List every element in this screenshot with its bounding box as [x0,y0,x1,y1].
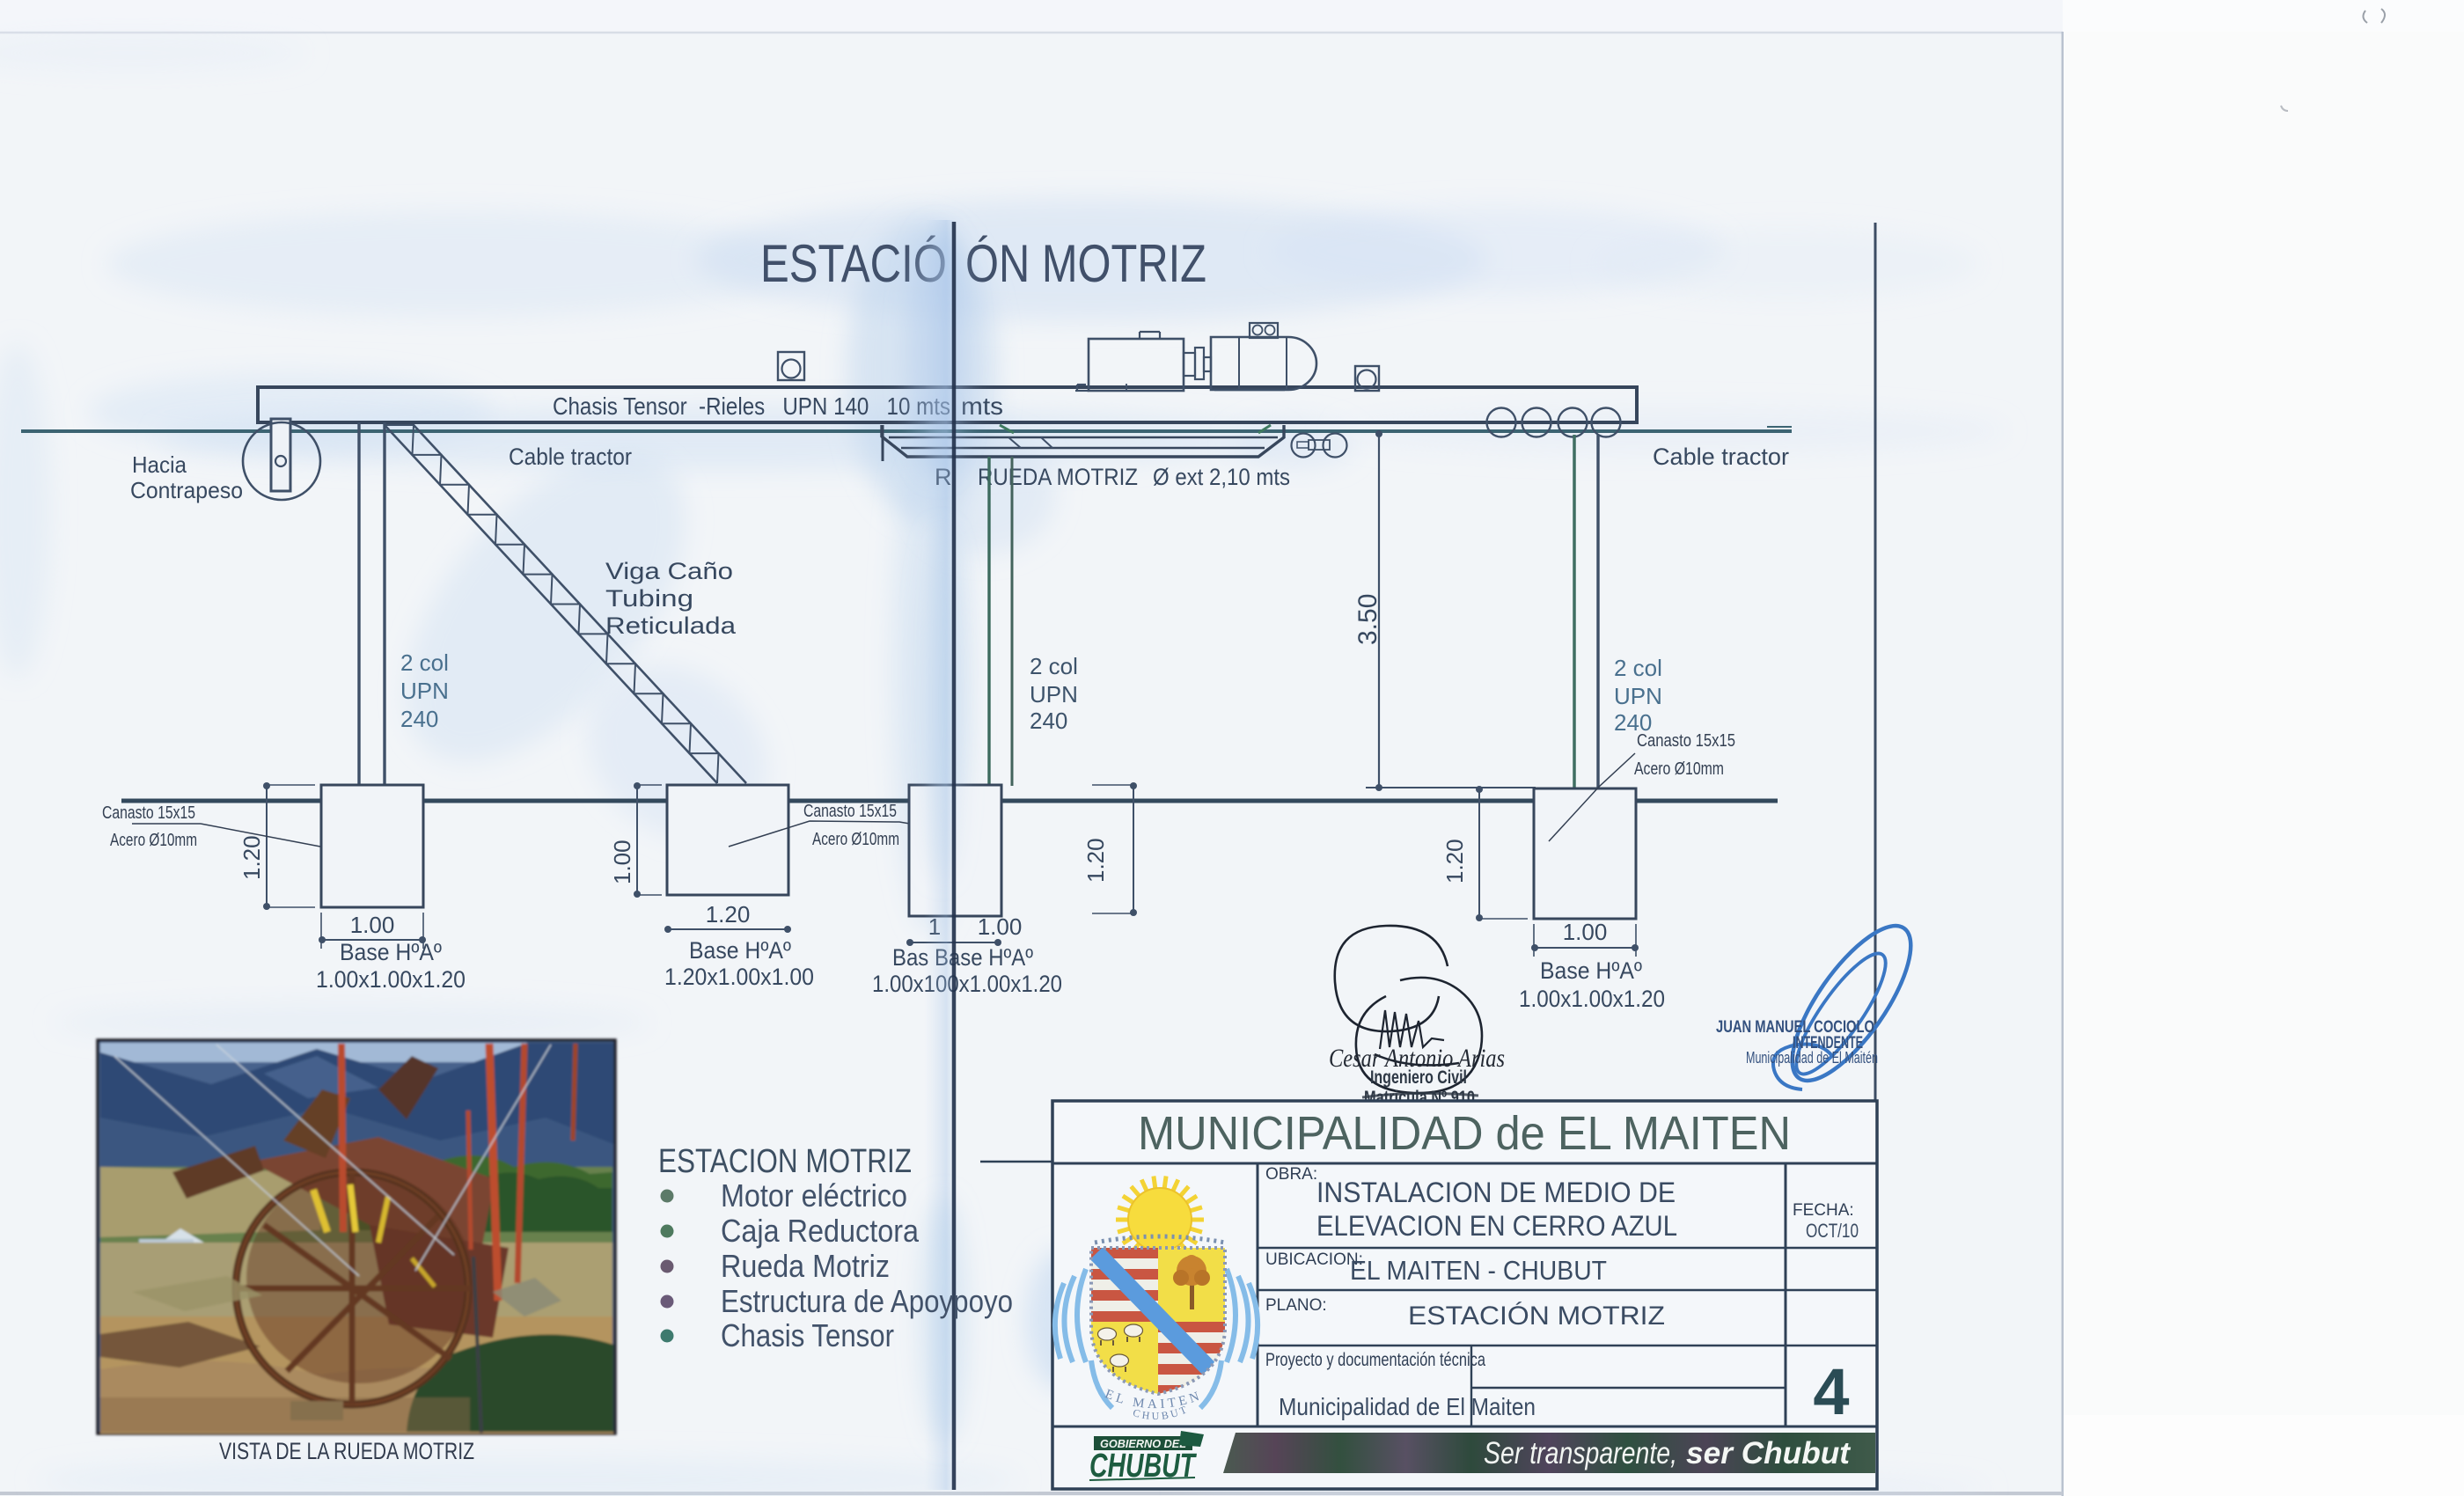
svg-text:1.00x100x1.00x1.20: 1.00x100x1.00x1.20 [872,971,1062,997]
svg-text:1.20: 1.20 [238,835,265,880]
svg-text:EL MAITEN - CHUBUT: EL MAITEN - CHUBUT [1350,1255,1607,1286]
svg-text:UPN: UPN [1614,683,1662,709]
svg-text:MUNICIPALIDAD de EL MAITEN: MUNICIPALIDAD de EL MAITEN [1138,1107,1791,1160]
svg-text:Ser transparente,: Ser transparente, [1484,1436,1677,1470]
svg-text:UPN: UPN [400,678,449,704]
svg-text:2 col: 2 col [1614,655,1662,681]
svg-text:Ingeniero Civil: Ingeniero Civil [1370,1067,1467,1088]
svg-text:FECHA:: FECHA: [1793,1201,1854,1220]
svg-text:Proyecto y documentación técni: Proyecto y documentación técnica [1265,1350,1485,1370]
svg-text:OBRA:: OBRA: [1265,1165,1317,1184]
svg-text:INSTALACION DE MEDIO DE: INSTALACION DE MEDIO DE [1316,1177,1676,1208]
svg-text:1.00: 1.00 [350,912,395,938]
svg-text:Base HºAº: Base HºAº [340,939,442,965]
svg-text:2 col: 2 col [400,649,449,676]
svg-text:RUEDA MOTRIZ: RUEDA MOTRIZ [978,464,1138,490]
svg-text:Contrapeso: Contrapeso [130,477,243,503]
svg-text:UBICACION:: UBICACION: [1265,1250,1363,1269]
svg-text:Reticulada: Reticulada [605,612,737,639]
svg-text:240: 240 [1030,708,1067,734]
svg-text:Tubing: Tubing [605,585,693,612]
svg-text:Canasto 15x15: Canasto 15x15 [803,802,897,821]
svg-text:1.20: 1.20 [706,901,751,928]
svg-text:Viga Caño: Viga Caño [605,558,733,584]
svg-text:3.50: 3.50 [1353,594,1382,645]
svg-text:ELEVACION EN CERRO AZUL: ELEVACION EN CERRO AZUL [1316,1210,1677,1242]
svg-text:Chasis Tensor -Rieles UPN 1: Chasis Tensor -Rieles UPN 140 10 mts [553,392,950,420]
svg-text:VISTA DE LA RUEDA MOTRIZ: VISTA DE LA RUEDA MOTRIZ [219,1438,474,1464]
svg-text:Ø ext 2,10 mts: Ø ext 2,10 mts [1153,464,1290,490]
svg-text:Motor eléctrico: Motor eléctrico [721,1177,907,1214]
svg-text:1.00x1.00x1.20: 1.00x1.00x1.20 [1519,986,1665,1012]
svg-text:Acero Ø10mm: Acero Ø10mm [110,831,197,850]
svg-text:Acero Ø10mm: Acero Ø10mm [1634,759,1724,779]
svg-text:1.20: 1.20 [1082,838,1109,883]
svg-text:Base HºAº: Base HºAº [689,937,791,964]
svg-text:1.00: 1.00 [1563,919,1608,945]
svg-text:Caja Reductora: Caja Reductora [721,1213,920,1249]
svg-text:ESTACIÓN MOTRIZ: ESTACIÓN MOTRIZ [1408,1302,1665,1331]
svg-text:Cable tractor: Cable tractor [509,444,632,470]
svg-text:Municipalidad de El Maitén: Municipalidad de El Maitén [1746,1049,1878,1067]
svg-text:1.00: 1.00 [978,913,1023,940]
svg-text:1.00x1.00x1.20: 1.00x1.00x1.20 [316,966,466,993]
svg-text:240: 240 [400,706,438,732]
svg-text:PLANO:: PLANO: [1265,1296,1327,1315]
svg-text:Municipalidad de El Maiten: Municipalidad de El Maiten [1279,1393,1536,1420]
svg-text:OCT/10: OCT/10 [1806,1220,1859,1242]
svg-text:1.20x1.00x1.00: 1.20x1.00x1.00 [664,964,814,990]
svg-text:Canasto 15x15: Canasto 15x15 [1637,731,1735,751]
svg-text:Base HºAº: Base HºAº [1540,957,1642,984]
svg-text:1.00: 1.00 [609,840,635,884]
svg-text:2 col: 2 col [1030,653,1078,679]
svg-text:Acero Ø10mm: Acero Ø10mm [812,830,899,849]
svg-text:mts: mts [961,392,1003,420]
svg-text:1.20: 1.20 [1441,839,1468,884]
svg-text:ser Chubut: ser Chubut [1686,1436,1851,1470]
svg-text:UPN: UPN [1030,681,1078,708]
svg-text:Chasis Tensor: Chasis Tensor [721,1317,894,1353]
svg-text:Bas Base HºAº: Bas Base HºAº [892,944,1033,971]
svg-text:4: 4 [1813,1355,1849,1428]
svg-text:Cable tractor: Cable tractor [1653,444,1789,470]
svg-text:Rueda Motriz: Rueda Motriz [721,1248,890,1284]
svg-text:Canasto 15x15: Canasto 15x15 [102,803,195,823]
svg-text:Hacia: Hacia [132,451,187,478]
svg-text:ÓN MOTRIZ: ÓN MOTRIZ [965,234,1206,293]
svg-text:ESTACION MOTRIZ: ESTACION MOTRIZ [658,1143,912,1180]
svg-text:Estructura de Apoypoyo: Estructura de Apoypoyo [721,1283,1013,1319]
